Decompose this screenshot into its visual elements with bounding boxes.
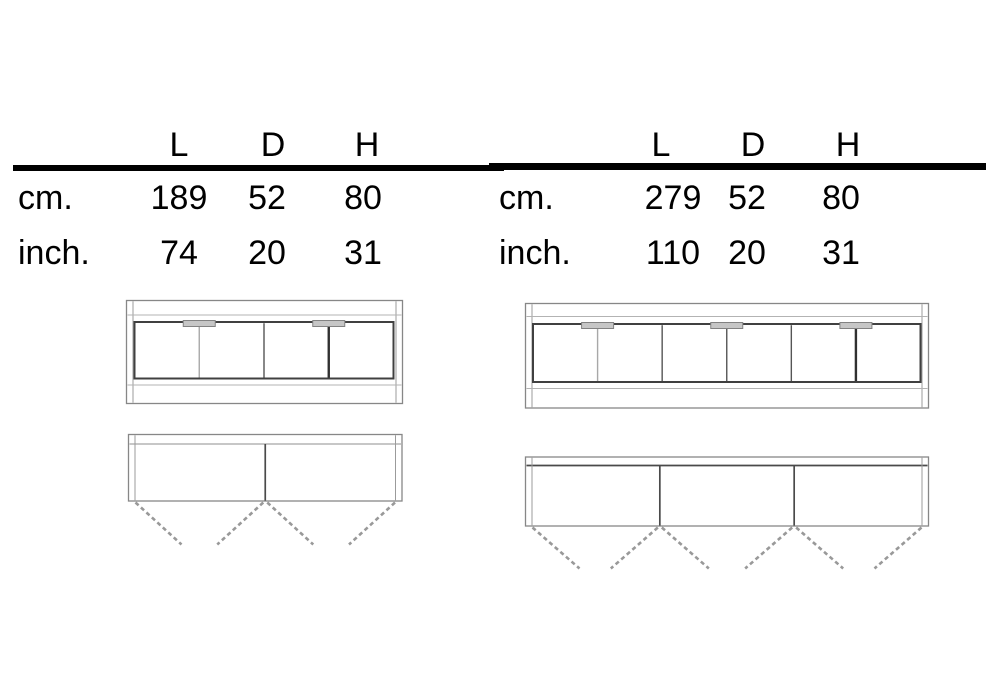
technical-drawings	[0, 0, 1000, 700]
door-handle	[183, 321, 215, 327]
spec-sheet-page: L D H cm. 189 52 80 inch. 74 20 31 L D H…	[0, 0, 1000, 700]
door-swing-dashed-line	[875, 528, 922, 569]
door-swing-dashed-line	[745, 528, 792, 569]
door-swing-dashed-line	[217, 503, 263, 545]
door-swing-dashed-line	[611, 528, 658, 569]
door-handle	[711, 323, 743, 329]
door-handle	[840, 323, 872, 329]
plan-outline	[526, 457, 929, 526]
door-swing-dashed-line	[267, 503, 313, 545]
door-handle	[582, 323, 614, 329]
door-swing-dashed-line	[349, 503, 395, 545]
door-swing-dashed-line	[796, 528, 843, 569]
door-handle	[313, 321, 345, 327]
door-swing-dashed-line	[662, 528, 709, 569]
door-swing-dashed-line	[136, 503, 182, 545]
door-swing-dashed-line	[533, 528, 580, 569]
